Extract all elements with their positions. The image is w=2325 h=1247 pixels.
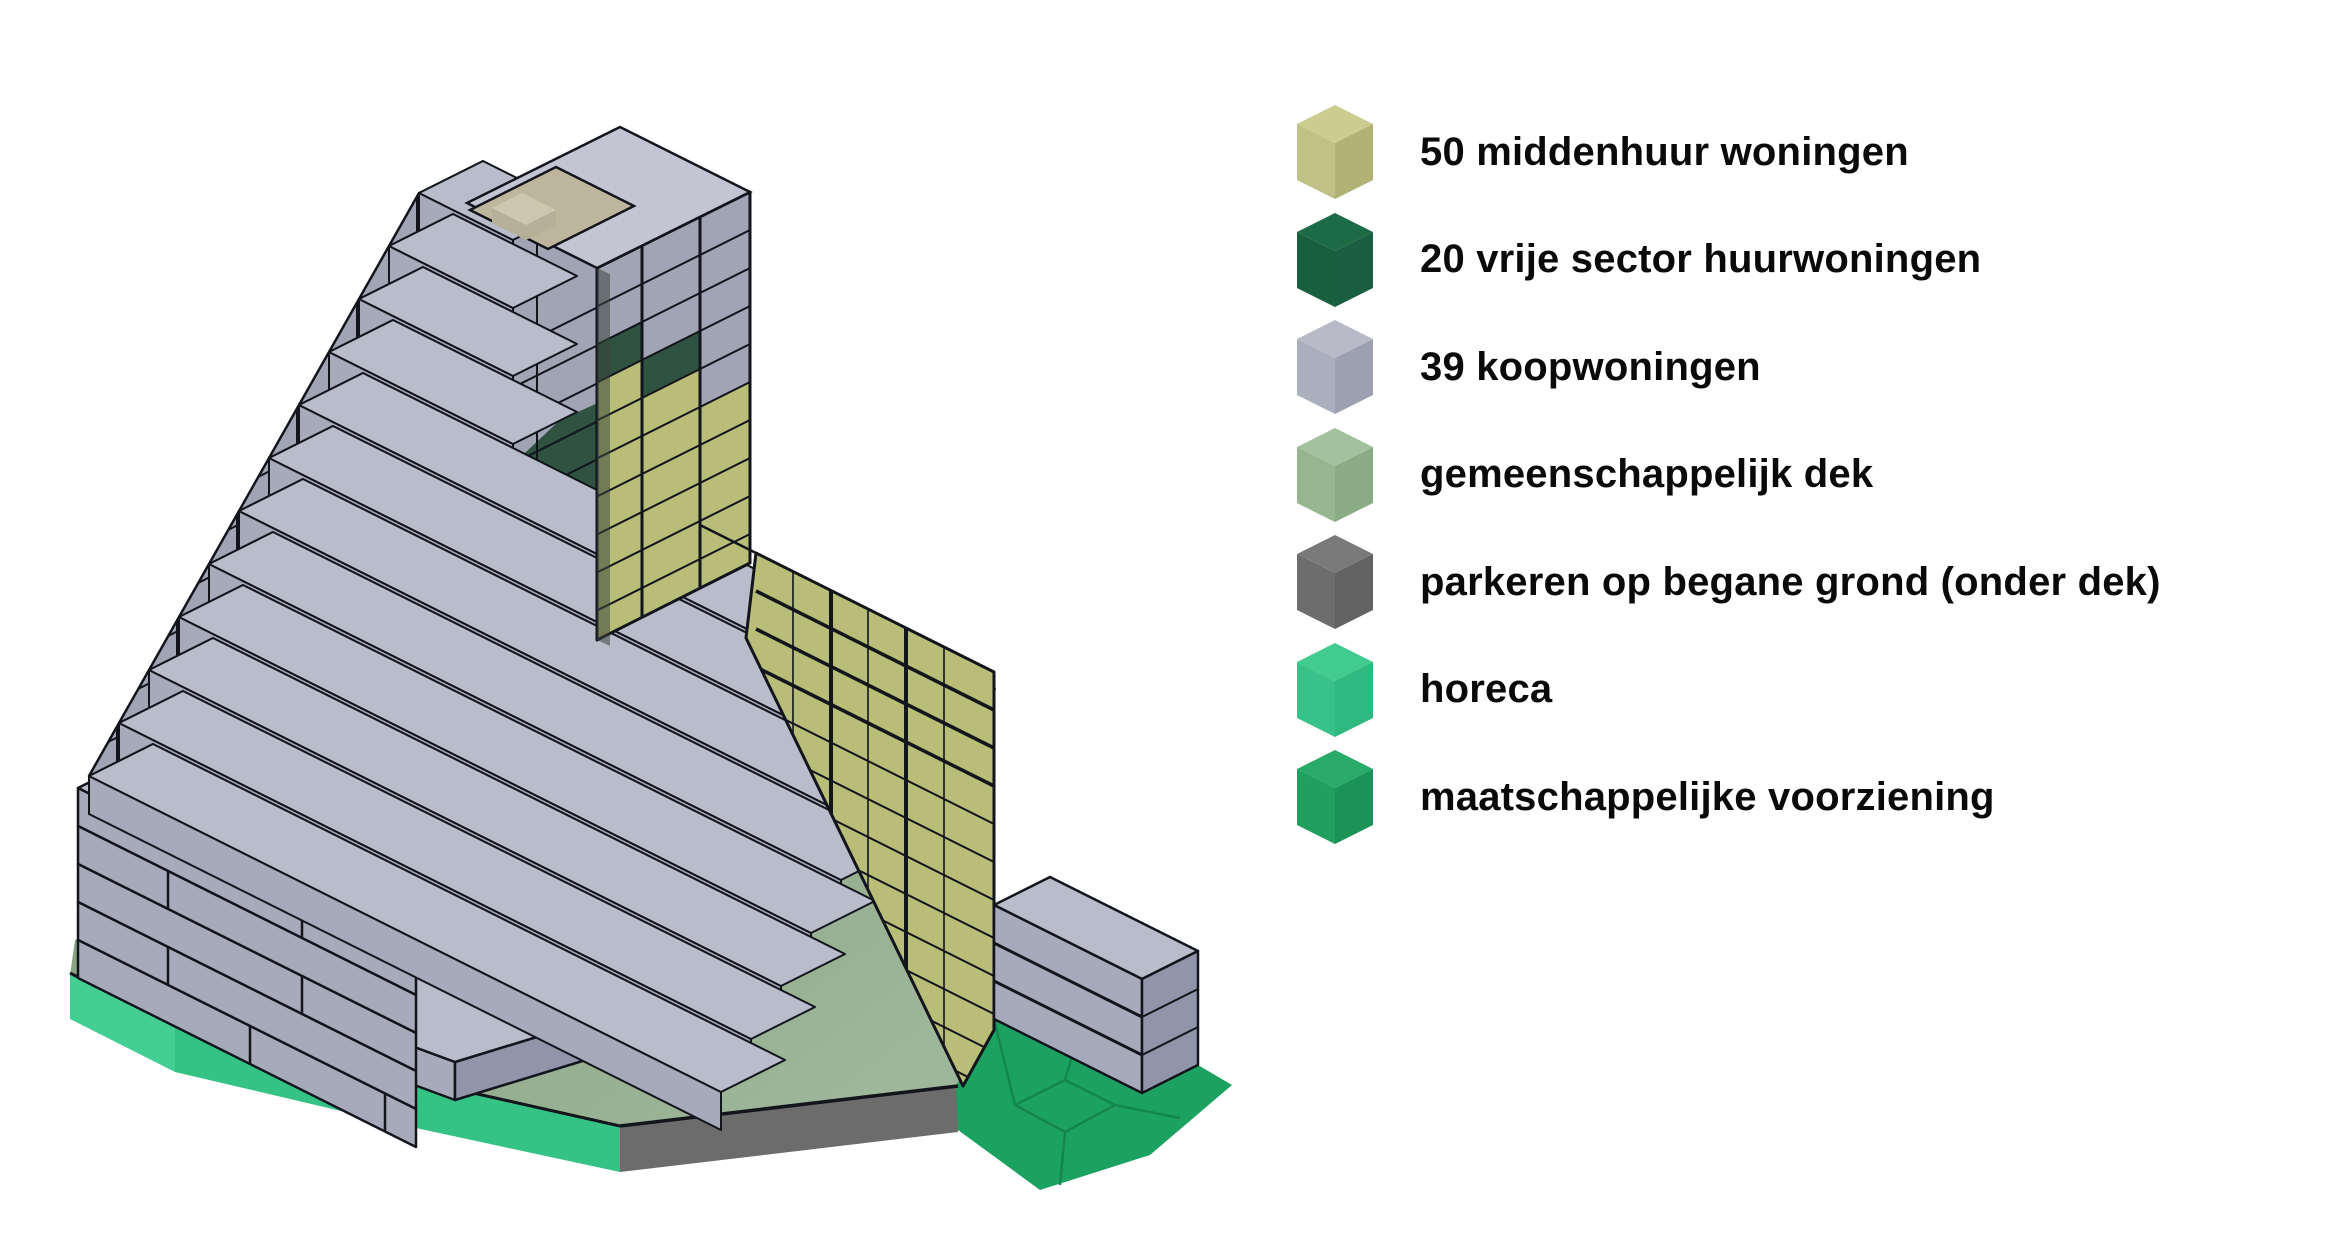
legend-label: 39 koopwoningen (1420, 345, 1761, 390)
legend-cube-icon (1297, 320, 1373, 414)
page: 50 middenhuur woningen 20 vrije sector h… (0, 0, 2325, 1247)
legend-cube-icon (1297, 535, 1373, 629)
legend-label: 50 middenhuur woningen (1420, 130, 1909, 175)
legend-cube-icon (1297, 750, 1373, 844)
legend-item: 50 middenhuur woningen (1297, 105, 1909, 199)
legend-item: horeca (1297, 643, 1552, 737)
legend-label: gemeenschappelijk dek (1420, 452, 1873, 497)
legend-label: parkeren op begane grond (onder dek) (1420, 560, 2161, 605)
legend-cube-icon (1297, 213, 1373, 307)
legend-item: 39 koopwoningen (1297, 320, 1761, 414)
legend-cube-icon (1297, 428, 1373, 522)
legend-cube-icon (1297, 105, 1373, 199)
legend-item: gemeenschappelijk dek (1297, 428, 1873, 522)
legend-item: 20 vrije sector huurwoningen (1297, 213, 1981, 307)
legend-item: parkeren op begane grond (onder dek) (1297, 535, 2161, 629)
legend-label: horeca (1420, 667, 1552, 712)
legend-label: 20 vrije sector huurwoningen (1420, 237, 1981, 282)
legend-label: maatschappelijke voorziening (1420, 775, 1995, 820)
legend-item: maatschappelijke voorziening (1297, 750, 1995, 844)
legend-cube-icon (1297, 643, 1373, 737)
